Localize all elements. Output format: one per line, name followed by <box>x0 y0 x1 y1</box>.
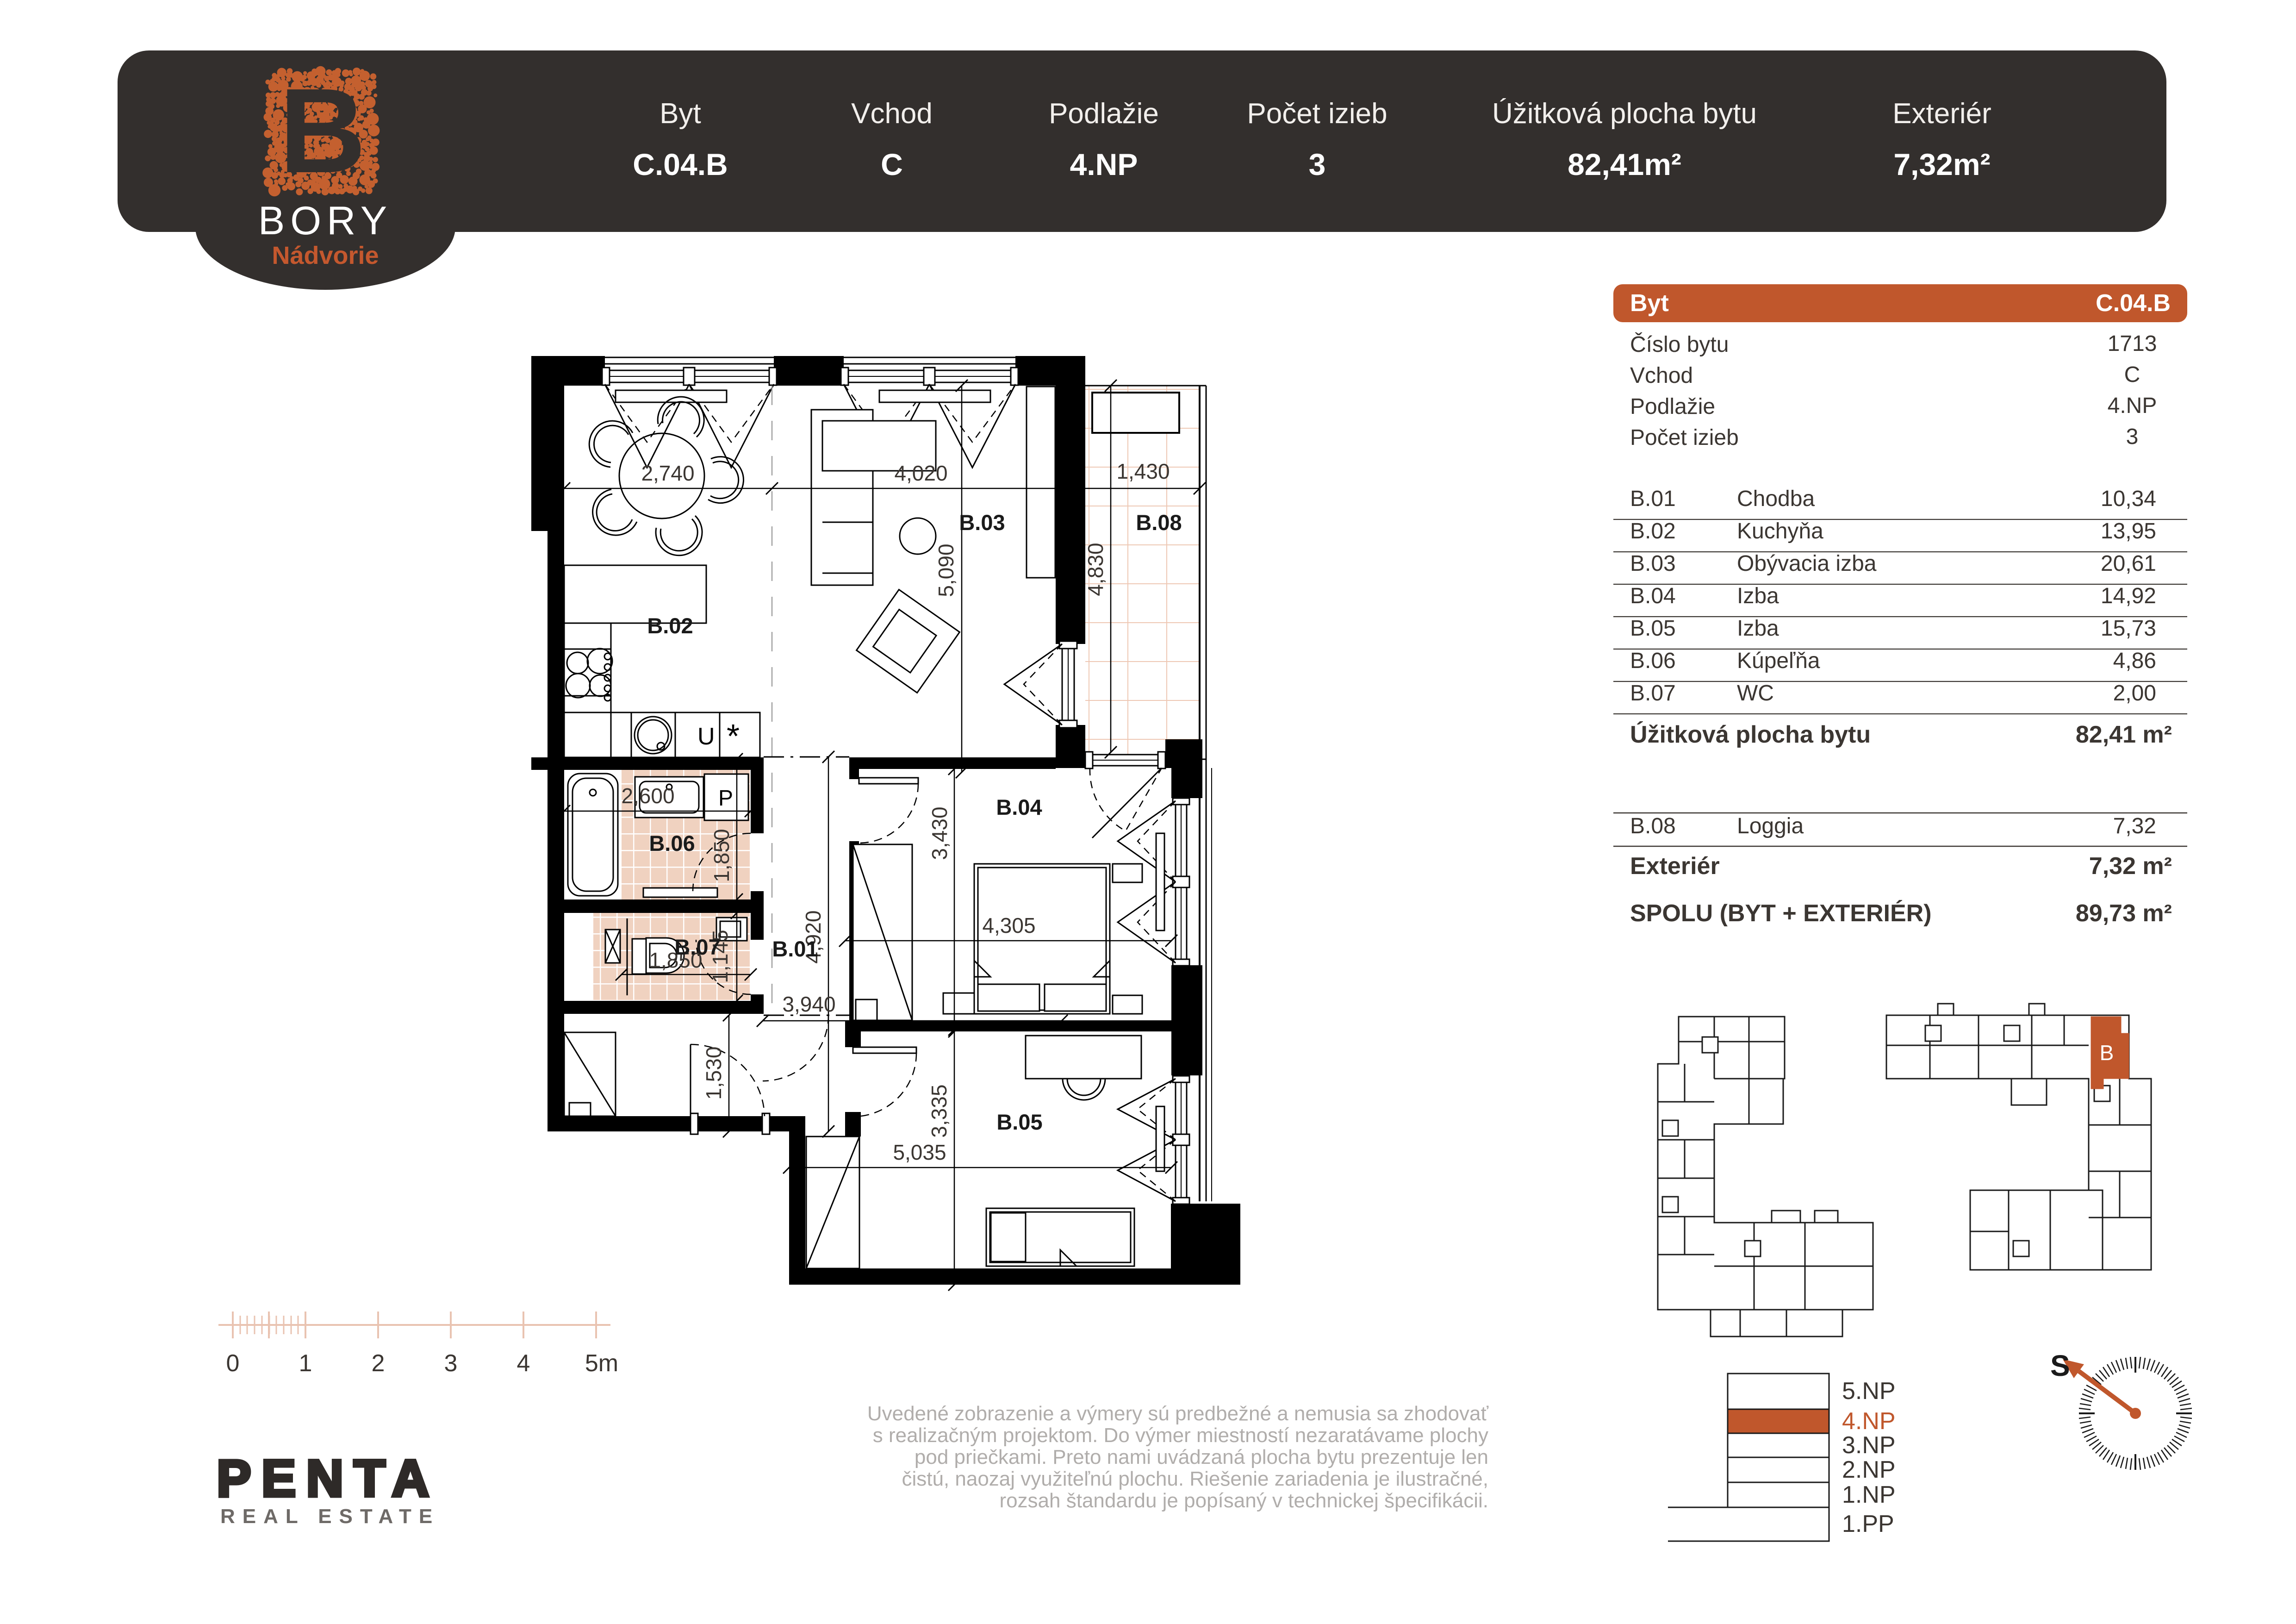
svg-text:2,00: 2,00 <box>2113 681 2156 706</box>
svg-text:3: 3 <box>444 1350 458 1377</box>
svg-text:1.PP: 1.PP <box>1842 1511 1894 1537</box>
svg-text:1,850: 1,850 <box>709 829 734 882</box>
svg-text:čistú, naozaj využiteľnú ploch: čistú, naozaj využiteľnú plochu. Riešeni… <box>902 1468 1488 1490</box>
svg-text:Vchod: Vchod <box>851 98 933 130</box>
svg-text:B.05: B.05 <box>1630 616 1676 641</box>
svg-text:Uvedené zobrazenie a výmery sú: Uvedené zobrazenie a výmery sú predbežné… <box>867 1402 1489 1425</box>
svg-text:4.NP: 4.NP <box>2108 394 2157 418</box>
svg-text:WC: WC <box>1737 681 1774 706</box>
svg-text:Nádvorie: Nádvorie <box>272 242 379 269</box>
svg-text:B.01: B.01 <box>772 937 818 961</box>
svg-text:1,430: 1,430 <box>1116 459 1170 483</box>
svg-text:4,020: 4,020 <box>894 461 947 485</box>
svg-text:B: B <box>279 64 366 198</box>
svg-text:10,34: 10,34 <box>2101 487 2156 511</box>
svg-text:13,95: 13,95 <box>2101 519 2156 543</box>
svg-text:rozsah štandardu je popísaný v: rozsah štandardu je popísaný v technicke… <box>999 1489 1488 1512</box>
svg-text:B.02: B.02 <box>647 613 693 638</box>
svg-text:B.04: B.04 <box>1630 584 1676 608</box>
svg-text:S: S <box>2050 1349 2070 1382</box>
svg-text:SPOLU (BYT + EXTERIÉR): SPOLU (BYT + EXTERIÉR) <box>1630 900 1932 927</box>
svg-text:B.07: B.07 <box>1630 681 1676 706</box>
svg-text:Podlažie: Podlažie <box>1049 98 1159 130</box>
svg-text:Počet izieb: Počet izieb <box>1630 425 1739 450</box>
svg-text:5m: 5m <box>585 1350 618 1377</box>
svg-text:Byt: Byt <box>1630 290 1669 317</box>
svg-text:C.04.B: C.04.B <box>2096 290 2171 317</box>
svg-text:1713: 1713 <box>2108 331 2157 356</box>
svg-text:82,41m²: 82,41m² <box>1568 147 1681 181</box>
svg-text:5.NP: 5.NP <box>1842 1378 1896 1405</box>
svg-text:Úžitková plocha bytu: Úžitková plocha bytu <box>1492 98 1757 130</box>
svg-text:Podlažie: Podlažie <box>1630 394 1715 419</box>
svg-text:PENTA: PENTA <box>217 1449 439 1507</box>
svg-text:2,740: 2,740 <box>641 461 694 485</box>
svg-text:20,61: 20,61 <box>2101 551 2156 576</box>
svg-text:Kuchyňa: Kuchyňa <box>1737 519 1823 543</box>
svg-text:B.02: B.02 <box>1630 519 1676 543</box>
svg-text:7,32: 7,32 <box>2113 814 2156 838</box>
svg-text:C.04.B: C.04.B <box>633 147 728 181</box>
svg-text:B: B <box>2100 1041 2114 1065</box>
svg-text:Obývacia izba: Obývacia izba <box>1737 551 1877 576</box>
svg-text:B.04: B.04 <box>996 795 1042 819</box>
svg-text:B.08: B.08 <box>1630 814 1676 838</box>
svg-text:89,73 m²: 89,73 m² <box>2076 900 2172 927</box>
svg-text:Byt: Byt <box>660 98 701 130</box>
svg-text:1,530: 1,530 <box>702 1046 726 1099</box>
svg-text:B.03: B.03 <box>959 510 1005 535</box>
svg-text:Exteriér: Exteriér <box>1892 98 1991 130</box>
svg-text:Číslo bytu: Číslo bytu <box>1630 332 1729 357</box>
svg-text:14,92: 14,92 <box>2101 584 2156 608</box>
svg-text:15,73: 15,73 <box>2101 616 2156 641</box>
svg-text:B.08: B.08 <box>1136 510 1182 535</box>
svg-text:2: 2 <box>372 1350 385 1377</box>
svg-text:B.01: B.01 <box>1630 487 1676 511</box>
svg-text:Izba: Izba <box>1737 584 1779 608</box>
svg-text:7,32m²: 7,32m² <box>1893 147 1990 181</box>
svg-text:3,430: 3,430 <box>927 806 952 860</box>
svg-text:Izba: Izba <box>1737 616 1779 641</box>
svg-text:Počet izieb: Počet izieb <box>1247 98 1387 130</box>
svg-text:C: C <box>881 147 903 181</box>
svg-text:REAL ESTATE: REAL ESTATE <box>220 1505 440 1528</box>
svg-text:B.06: B.06 <box>1630 649 1676 673</box>
svg-text:4,86: 4,86 <box>2113 649 2156 673</box>
svg-text:2.NP: 2.NP <box>1842 1456 1896 1483</box>
svg-text:3: 3 <box>1309 147 1326 181</box>
svg-text:C: C <box>2124 362 2140 387</box>
svg-text:7,32 m²: 7,32 m² <box>2089 853 2172 880</box>
svg-text:s realizačným projektom. Do vý: s realizačným projektom. Do výmer miestn… <box>873 1424 1488 1447</box>
svg-text:4.NP: 4.NP <box>1842 1408 1896 1435</box>
svg-text:Chodba: Chodba <box>1737 487 1815 511</box>
svg-text:B.07: B.07 <box>674 935 720 959</box>
svg-text:3: 3 <box>2126 425 2139 449</box>
svg-text:5,035: 5,035 <box>893 1140 946 1164</box>
svg-text:4,305: 4,305 <box>982 913 1035 937</box>
svg-text:4,830: 4,830 <box>1083 543 1108 596</box>
svg-text:0: 0 <box>226 1350 240 1377</box>
svg-text:4.NP: 4.NP <box>1070 147 1138 181</box>
svg-text:2,600: 2,600 <box>621 784 674 808</box>
svg-text:Kúpeľňa: Kúpeľňa <box>1737 649 1820 673</box>
svg-text:B.05: B.05 <box>996 1110 1042 1134</box>
svg-text:1: 1 <box>299 1350 312 1377</box>
svg-text:Loggia: Loggia <box>1737 814 1804 838</box>
svg-text:P: P <box>718 786 733 811</box>
svg-text:3,940: 3,940 <box>782 992 835 1016</box>
svg-text:B.03: B.03 <box>1630 551 1676 576</box>
svg-text:5,090: 5,090 <box>934 543 958 597</box>
svg-text:Úžitková plocha bytu: Úžitková plocha bytu <box>1630 721 1871 748</box>
svg-text:4: 4 <box>517 1350 530 1377</box>
svg-text:3,335: 3,335 <box>927 1084 951 1137</box>
svg-text:1.NP: 1.NP <box>1842 1481 1896 1508</box>
svg-text:3.NP: 3.NP <box>1842 1432 1896 1459</box>
svg-text:82,41 m²: 82,41 m² <box>2076 721 2172 748</box>
svg-text:B.06: B.06 <box>649 831 695 856</box>
svg-text:*: * <box>727 718 740 755</box>
svg-text:U: U <box>697 723 715 750</box>
svg-text:pod priečkami. Preto nami uvád: pod priečkami. Preto nami uvádzaná ploch… <box>915 1446 1488 1468</box>
svg-text:BORY: BORY <box>258 199 392 243</box>
svg-text:Exteriér: Exteriér <box>1630 853 1720 880</box>
svg-text:Vchod: Vchod <box>1630 363 1693 388</box>
